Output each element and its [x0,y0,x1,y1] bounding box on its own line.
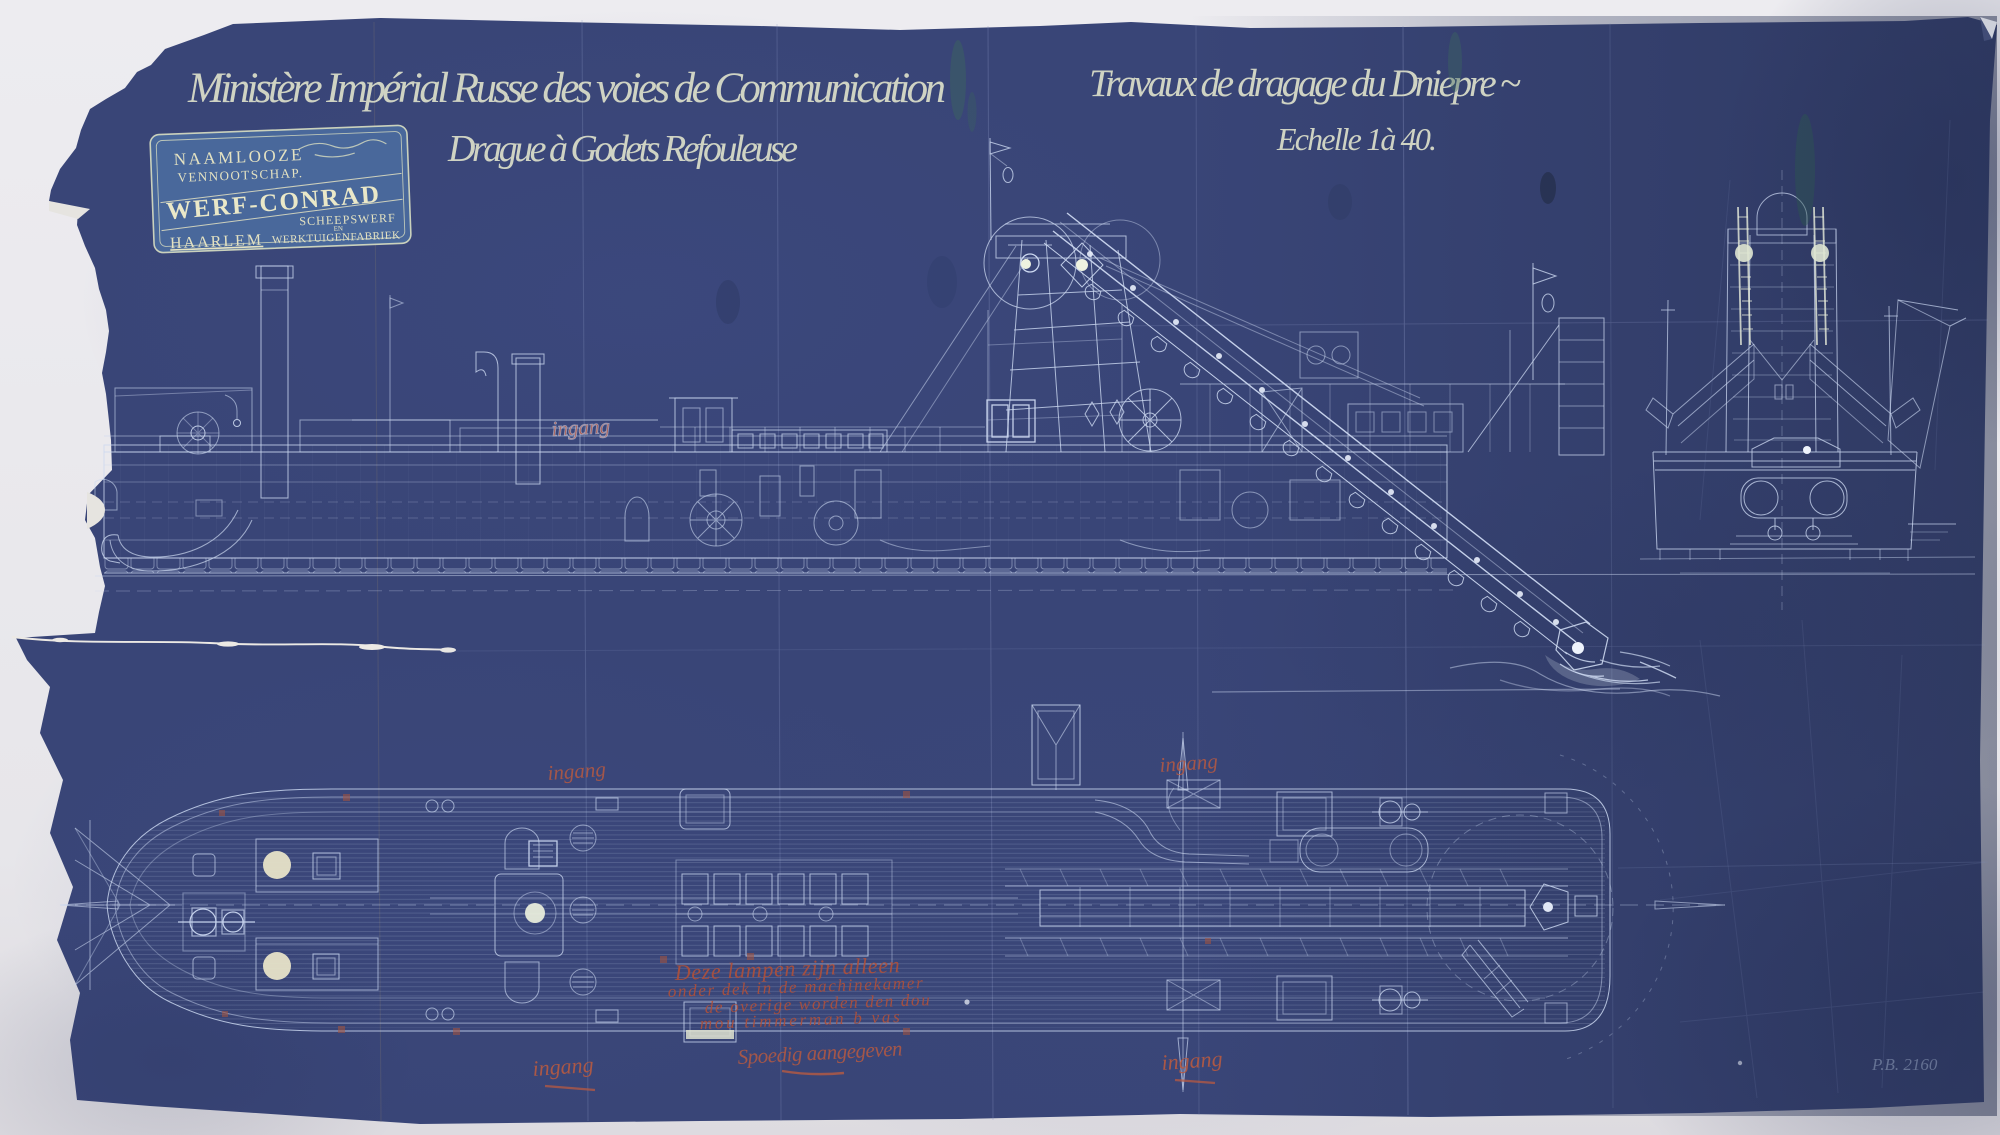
svg-text:Ministère Impérial Russe des v: Ministère Impérial Russe des voies de Co… [187,65,946,112]
svg-text:P.B. 2160: P.B. 2160 [1871,1055,1938,1074]
svg-text:HAARLEM: HAARLEM [170,232,264,253]
svg-text:ingang: ingang [551,414,611,441]
svg-text:ingang: ingang [1159,749,1219,777]
svg-text:Drague à Godets Refouleuse: Drague à Godets Refouleuse [447,128,798,170]
svg-text:Echelle 1à 40.: Echelle 1à 40. [1276,121,1437,157]
svg-text:ingang: ingang [547,757,607,785]
svg-text:ingang: ingang [532,1052,595,1081]
svg-text:ingang: ingang [1161,1046,1224,1075]
